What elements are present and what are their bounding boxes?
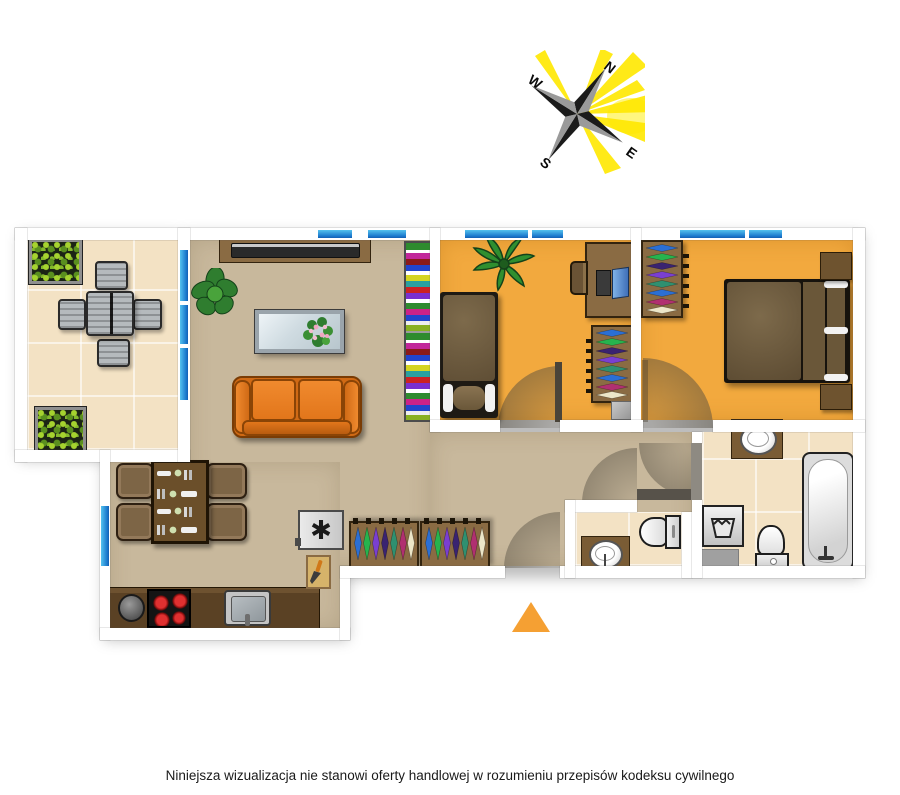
faucet-icon [818,556,834,560]
wall [560,566,865,578]
dining-chair [116,463,154,499]
wall [713,420,865,432]
palm-plant-icon [472,234,536,292]
bed-blanket [727,282,801,380]
door-leaf-bathroom [691,443,702,500]
wall [565,500,575,578]
floorplan-visualization: N E S W [0,0,900,795]
sofa-cushion [251,379,296,421]
desk-chair [570,261,588,295]
desk [585,242,637,318]
dining-chair [116,503,154,541]
patio-chair [95,261,128,290]
bookshelf [404,241,432,422]
bathroom-toilet [755,525,789,570]
wall [430,228,440,432]
dining-chair [206,463,247,499]
wardrobe [591,325,633,403]
bed-pillow [485,384,495,412]
wall [430,420,500,432]
patio-chair [97,339,130,367]
fridge-symbol: ✱ [310,515,332,545]
door-leaf-bedroom1 [555,362,562,422]
door-leaf-bedroom2 [642,360,648,422]
cooking-pot [118,594,145,622]
wall [631,228,641,432]
balcony-door-window [180,250,188,400]
window [368,230,406,238]
wall [100,628,350,640]
sofa [232,376,362,438]
sofa-cushion [298,379,343,421]
planter-box [35,407,86,453]
stove [147,589,191,628]
wall [682,512,692,578]
bathtub [802,452,854,570]
compass-label-s: S [537,154,554,172]
fridge: ✱ [298,510,344,550]
window [465,230,563,238]
cutting-board [306,555,331,589]
compass-label-e: E [623,143,640,161]
kitchen-window [101,506,109,566]
washing-machine [702,505,744,547]
hall-wardrobe [349,521,419,568]
window-mullion [180,301,188,305]
wardrobe-hangers [683,250,689,308]
window-mullion [180,344,188,348]
computer-tower [596,270,611,296]
entrance-arrow [512,602,550,632]
dining-chair [206,503,247,541]
wardrobe-hangers [586,335,592,393]
flower-bouquet-icon [298,315,338,351]
wall [15,228,27,462]
single-bed [440,292,498,418]
hall-wardrobe [420,521,490,568]
double-bed [724,279,850,383]
caption: Niniejsza wizualizacja nie stanowi ofert… [0,768,900,783]
plant-icon [191,268,239,318]
wall [853,228,865,578]
dining-table [151,460,209,544]
door-leaf-wc [637,489,692,500]
tv [231,243,360,258]
bed-blanket [443,295,495,381]
wc-toilet [639,515,684,549]
wall [565,500,637,512]
patio-table [86,291,134,336]
wall [560,420,643,432]
nightstand [820,384,852,410]
window [318,230,352,238]
window-mullion [528,230,532,238]
wc-sink [589,540,623,569]
planter-box [29,239,82,284]
kitchen-sink [224,590,271,626]
faucet-icon [245,614,250,626]
bed-pillow [443,384,453,412]
compass-rose: N E S W [505,50,645,180]
wall [340,566,505,578]
nightstand [820,252,852,280]
patio-chair [58,299,86,330]
wall [692,432,702,443]
bed-pillow [453,386,485,410]
wardrobe [641,240,683,318]
window-mullion [745,230,749,238]
compass-label-w: W [525,71,546,92]
computer-monitor [612,267,629,299]
wall [692,500,702,578]
window [680,230,782,238]
sofa-back [242,420,352,436]
patio-chair [133,299,162,330]
